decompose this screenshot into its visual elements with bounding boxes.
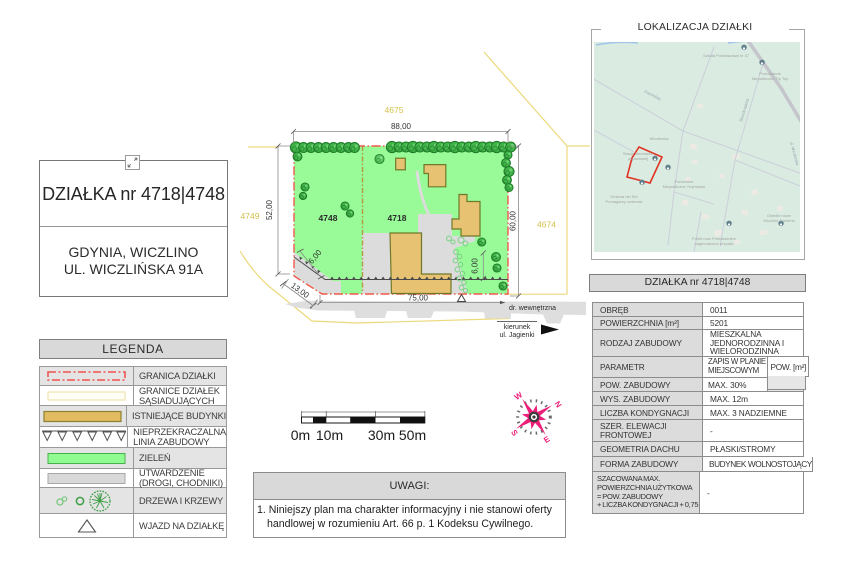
svg-text:ul. Wiczlinska: ul. Wiczlinska [789, 141, 800, 166]
svg-text:60,00: 60,00 [509, 210, 518, 231]
svg-text:50m: 50m [399, 427, 426, 443]
svg-text:Wiczlinska: Wiczlinska [650, 136, 670, 141]
svg-text:N: N [553, 400, 564, 410]
svg-text:4718: 4718 [388, 213, 407, 223]
svg-text:0m: 0m [291, 427, 310, 443]
svg-text:75,00: 75,00 [408, 294, 429, 303]
svg-text:Szkoła Podstawowa nr 37: Szkoła Podstawowa nr 37 [703, 53, 750, 58]
svg-text:88,00: 88,00 [391, 122, 412, 131]
svg-text:Wiczlino Gardens: Wiczlino Gardens [763, 218, 794, 223]
svg-text:Bieszkowicka: Bieszkowicka [738, 97, 750, 122]
svg-text:4675: 4675 [385, 105, 404, 115]
svg-text:ul. Jagienki: ul. Jagienki [499, 332, 534, 339]
svg-text:4748: 4748 [319, 213, 338, 223]
svg-text:kierunek: kierunek [504, 324, 531, 331]
svg-text:4674: 4674 [537, 220, 556, 230]
svg-text:Niepubliczne Tip Top: Niepubliczne Tip Top [752, 76, 790, 81]
svg-text:Zapolskiej: Zapolskiej [644, 88, 662, 101]
svg-text:Niepubliczne Trojmiasto: Niepubliczne Trojmiasto [663, 184, 706, 189]
svg-text:30m: 30m [368, 427, 395, 443]
svg-text:4749: 4749 [241, 211, 260, 221]
svg-text:Pomagamy zwierzak: Pomagamy zwierzak [606, 199, 643, 204]
svg-text:nagimnazone przystki: nagimnazone przystki [695, 241, 734, 246]
svg-text:S: S [509, 428, 520, 438]
svg-text:10m: 10m [316, 427, 343, 443]
svg-text:W: W [513, 390, 525, 402]
svg-text:52,00: 52,00 [265, 199, 274, 220]
svg-text:dr. wewnętrzna: dr. wewnętrzna [509, 305, 556, 312]
svg-text:E: E [542, 434, 552, 445]
svg-text:pojazdowej: pojazdowej [628, 156, 648, 161]
svg-text:6,00: 6,00 [471, 258, 480, 274]
